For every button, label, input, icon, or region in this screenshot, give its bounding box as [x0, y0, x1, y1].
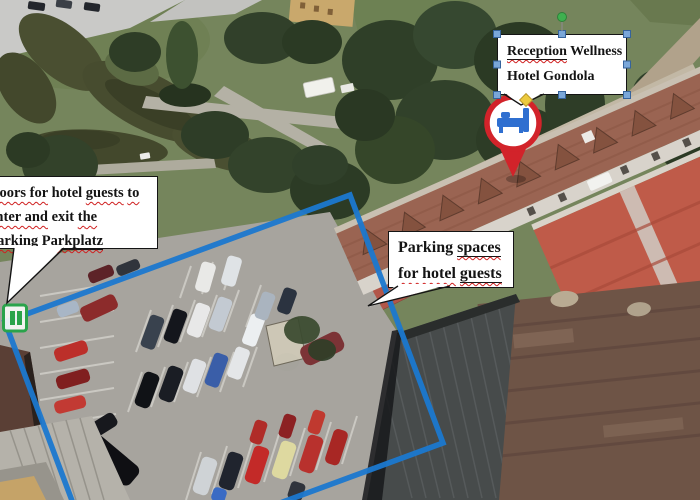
- callout-parking-spaces[interactable]: Parking spaces for hotel guests: [388, 231, 514, 288]
- callout-text: for hotel: [398, 265, 456, 282]
- callout-text: enter and: [0, 209, 48, 225]
- callout-text: Wellness: [570, 44, 622, 59]
- callout-doors-note[interactable]: Doors for hotel guests to enter and exit…: [0, 176, 158, 249]
- callout-text: hotel: [52, 185, 83, 201]
- callout-text: Reception: [507, 44, 567, 60]
- door-marker-icon[interactable]: [4, 305, 27, 331]
- callout-text: parking: [0, 233, 38, 249]
- callout-text: Parkplatz: [42, 233, 103, 250]
- callout-text: guests: [460, 265, 502, 283]
- callout-text: spaces: [457, 239, 501, 257]
- callout-text: exit: [52, 209, 75, 225]
- aerial-map-canvas: Doors for hotel guests to enter and exit…: [0, 0, 700, 500]
- callout-text: Doors for: [0, 185, 48, 201]
- callout-text: the: [78, 209, 97, 225]
- callout-text: Hotel Gondola: [507, 69, 595, 84]
- callout-text: Parking: [398, 239, 453, 256]
- callout-reception-label[interactable]: Reception Wellness Hotel Gondola: [497, 34, 627, 95]
- callout-text: to: [127, 185, 139, 201]
- callout-text: guests: [86, 185, 124, 201]
